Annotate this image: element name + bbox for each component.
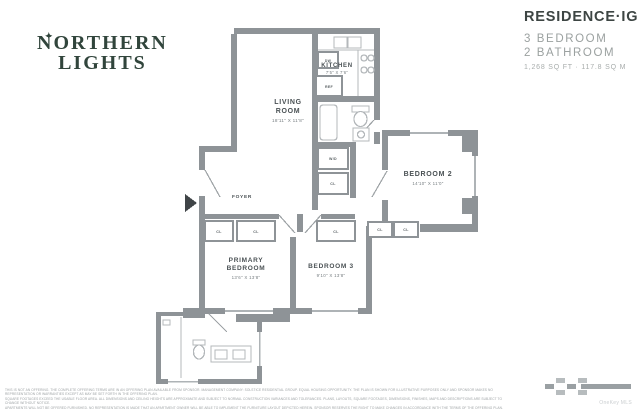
double-vanity-icon xyxy=(211,346,251,362)
disclaimer-line: APARTMENTS WILL NOT BE OFFERED FURNISHED… xyxy=(5,406,505,410)
primary-bedroom-label: PRIMARY xyxy=(229,257,264,264)
living-room-label: LIVING xyxy=(274,99,302,106)
closet-label: CL xyxy=(333,230,339,234)
closet-label: CL xyxy=(377,228,383,232)
entry-arrow-icon xyxy=(185,194,197,212)
bathtub-icon xyxy=(320,105,337,140)
washer-dryer-label: W/D xyxy=(329,157,337,161)
mls-watermark-text: OneKey MLS xyxy=(560,400,632,406)
kitchen-dims: 7'5" X 7'6" xyxy=(326,70,349,75)
closet-label: CL xyxy=(330,182,336,186)
living-room-label2: ROOM xyxy=(276,108,301,115)
floorplan-page: ✦ NORTHERN LIGHTS RESIDENCE·IG 3 BEDROOM… xyxy=(0,0,640,414)
primary-bath-fixtures xyxy=(163,317,251,378)
bedroom2-label: BEDROOM 2 xyxy=(404,171,453,178)
disclaimer-line: THIS IS NOT AN OFFERING. THE COMPLETE OF… xyxy=(5,388,505,397)
foyer-label: FOYER xyxy=(232,194,252,200)
shower-icon xyxy=(163,320,170,325)
toilet-icon xyxy=(352,106,369,127)
primary-toilet-icon xyxy=(193,340,205,359)
kitchen-sink-icon xyxy=(334,37,361,48)
bathroom1-fixtures xyxy=(320,105,369,141)
primary-bedroom-label2: BEDROOM xyxy=(227,265,266,272)
dishwasher-label: DW xyxy=(325,59,332,63)
closet-label: CL xyxy=(253,230,259,234)
floorplan-drawing: LIVING ROOM 18'11" X 11'8" KITCHEN 7'5" … xyxy=(0,0,640,414)
primary-bedroom-dims: 13'6" X 13'8" xyxy=(232,275,261,280)
closet-label: CL xyxy=(216,230,222,234)
kitchen-label: KITCHEN xyxy=(321,63,353,69)
mls-watermark-logo xyxy=(545,378,631,395)
stove-icon xyxy=(361,55,374,73)
legal-disclaimer: THIS IS NOT AN OFFERING. THE COMPLETE OF… xyxy=(5,388,505,410)
living-room-dims: 18'11" X 11'8" xyxy=(272,118,304,123)
bedroom3-label: BEDROOM 3 xyxy=(308,263,354,270)
bedroom2-dims: 14'10" X 11'0" xyxy=(412,181,443,186)
refrigerator-label: REF xyxy=(325,85,334,89)
bath-sink-icon xyxy=(353,128,369,141)
bedroom3-dims: 9'10" X 13'8" xyxy=(317,273,346,278)
disclaimer-line: SQUARE FOOTAGES EXCEED THE USABLE FLOOR … xyxy=(5,397,505,406)
closet-label: CL xyxy=(403,228,409,232)
